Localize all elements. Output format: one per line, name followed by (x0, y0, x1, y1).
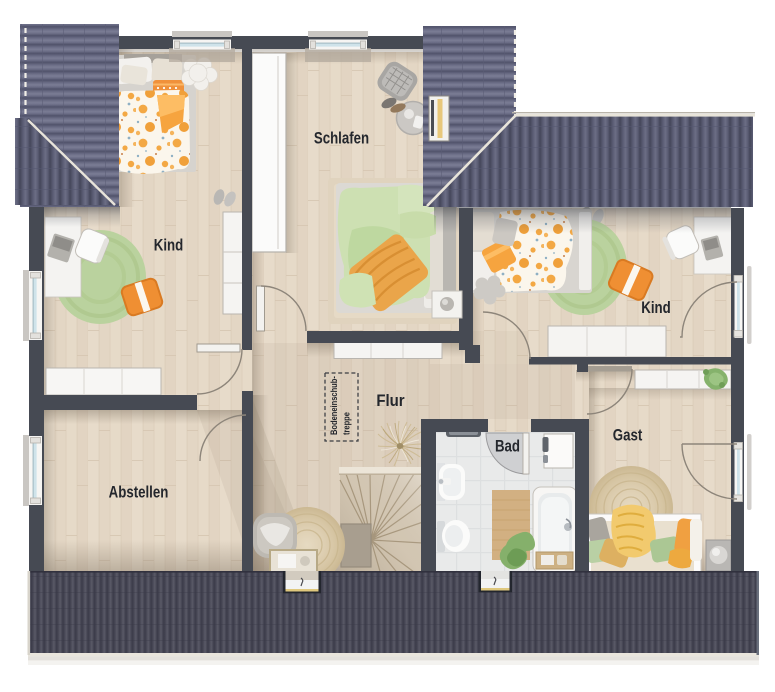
svg-text:Kind: Kind (641, 299, 670, 318)
svg-text:Bad: Bad (495, 437, 520, 456)
svg-text:Flur: Flur (376, 392, 404, 410)
svg-text:Gast: Gast (613, 426, 642, 445)
svg-text:treppe: treppe (341, 412, 352, 435)
svg-text:Bodeneinschub-: Bodeneinschub- (328, 376, 339, 435)
svg-text:Schlafen: Schlafen (314, 129, 369, 148)
svg-text:Abstellen: Abstellen (109, 483, 169, 502)
svg-text:Kind: Kind (154, 236, 183, 255)
